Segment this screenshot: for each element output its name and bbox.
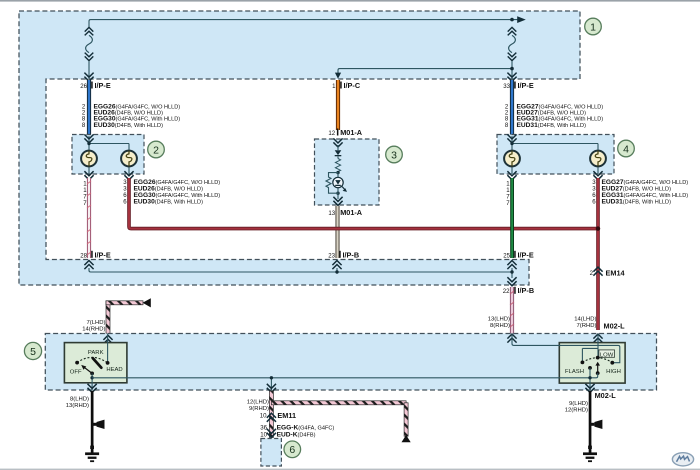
svg-text:3: 3 [391,149,397,161]
svg-text:M01-A: M01-A [340,128,363,137]
svg-text:8: 8 [82,122,86,129]
svg-text:4: 4 [623,143,629,155]
svg-text:14(RHD): 14(RHD) [82,327,105,333]
svg-text:22: 22 [503,288,510,295]
svg-text:EUD30(D4FB, With HLLD): EUD30(D4FB, With HLLD) [94,122,164,129]
svg-text:8(RHD): 8(RHD) [490,323,510,329]
svg-text:8: 8 [505,122,509,129]
svg-text:I/P-B: I/P-B [518,286,535,295]
svg-text:I/P-E: I/P-E [95,81,111,90]
svg-text:10: 10 [260,413,267,420]
svg-text:I/P-E: I/P-E [95,250,111,259]
svg-text:M02-L: M02-L [595,391,617,400]
svg-text:OFF: OFF [70,369,82,375]
svg-text:HIGH: HIGH [606,369,621,375]
svg-text:PARK: PARK [88,350,104,356]
svg-text:13(RHD): 13(RHD) [66,403,89,409]
svg-text:12(RHD): 12(RHD) [565,408,588,414]
svg-text:5: 5 [30,346,36,358]
svg-text:7(RHD): 7(RHD) [577,323,597,329]
svg-text:EUD30(D4FB, With HLLD): EUD30(D4FB, With HLLD) [134,199,204,206]
svg-text:9(LHD): 9(LHD) [569,401,588,407]
svg-text:HEAD: HEAD [106,367,122,373]
svg-text:EUD-K(D4FB): EUD-K(D4FB) [277,431,316,438]
svg-text:FLASH: FLASH [565,369,584,375]
svg-text:23: 23 [328,252,335,259]
svg-text:25: 25 [503,252,510,259]
svg-text:9(RHD): 9(RHD) [249,406,269,412]
svg-text:I/P-E: I/P-E [518,81,534,90]
svg-text:12: 12 [328,130,335,137]
svg-text:10: 10 [260,431,267,438]
svg-text:8(LHD): 8(LHD) [70,397,89,403]
svg-text:2: 2 [153,144,159,156]
svg-text:I/P-B: I/P-B [343,250,360,259]
svg-text:M01-A: M01-A [340,208,363,217]
svg-text:EUD31(D4FB, With HLLD): EUD31(D4FB, With HLLD) [602,199,672,206]
svg-text:M02-L: M02-L [604,321,626,330]
svg-text:28: 28 [80,252,87,259]
svg-text:EM11: EM11 [277,411,296,420]
svg-text:12(LHD): 12(LHD) [247,399,269,405]
svg-text:I/P-C: I/P-C [344,81,361,90]
svg-text:LOW: LOW [600,352,614,358]
svg-text:13(LHD): 13(LHD) [488,317,510,323]
svg-text:33: 33 [503,83,510,90]
svg-text:1: 1 [590,21,596,33]
svg-text:EUD31(D4FB, With HLLD): EUD31(D4FB, With HLLD) [517,122,587,129]
svg-text:13: 13 [328,210,335,217]
svg-text:7(LHD): 7(LHD) [87,320,106,326]
svg-text:EM14: EM14 [606,268,626,277]
svg-text:6: 6 [289,444,295,456]
svg-text:6: 6 [123,199,127,206]
svg-text:26: 26 [80,83,87,90]
svg-text:I/P-E: I/P-E [518,250,534,259]
svg-text:14(LHD): 14(LHD) [574,317,596,323]
